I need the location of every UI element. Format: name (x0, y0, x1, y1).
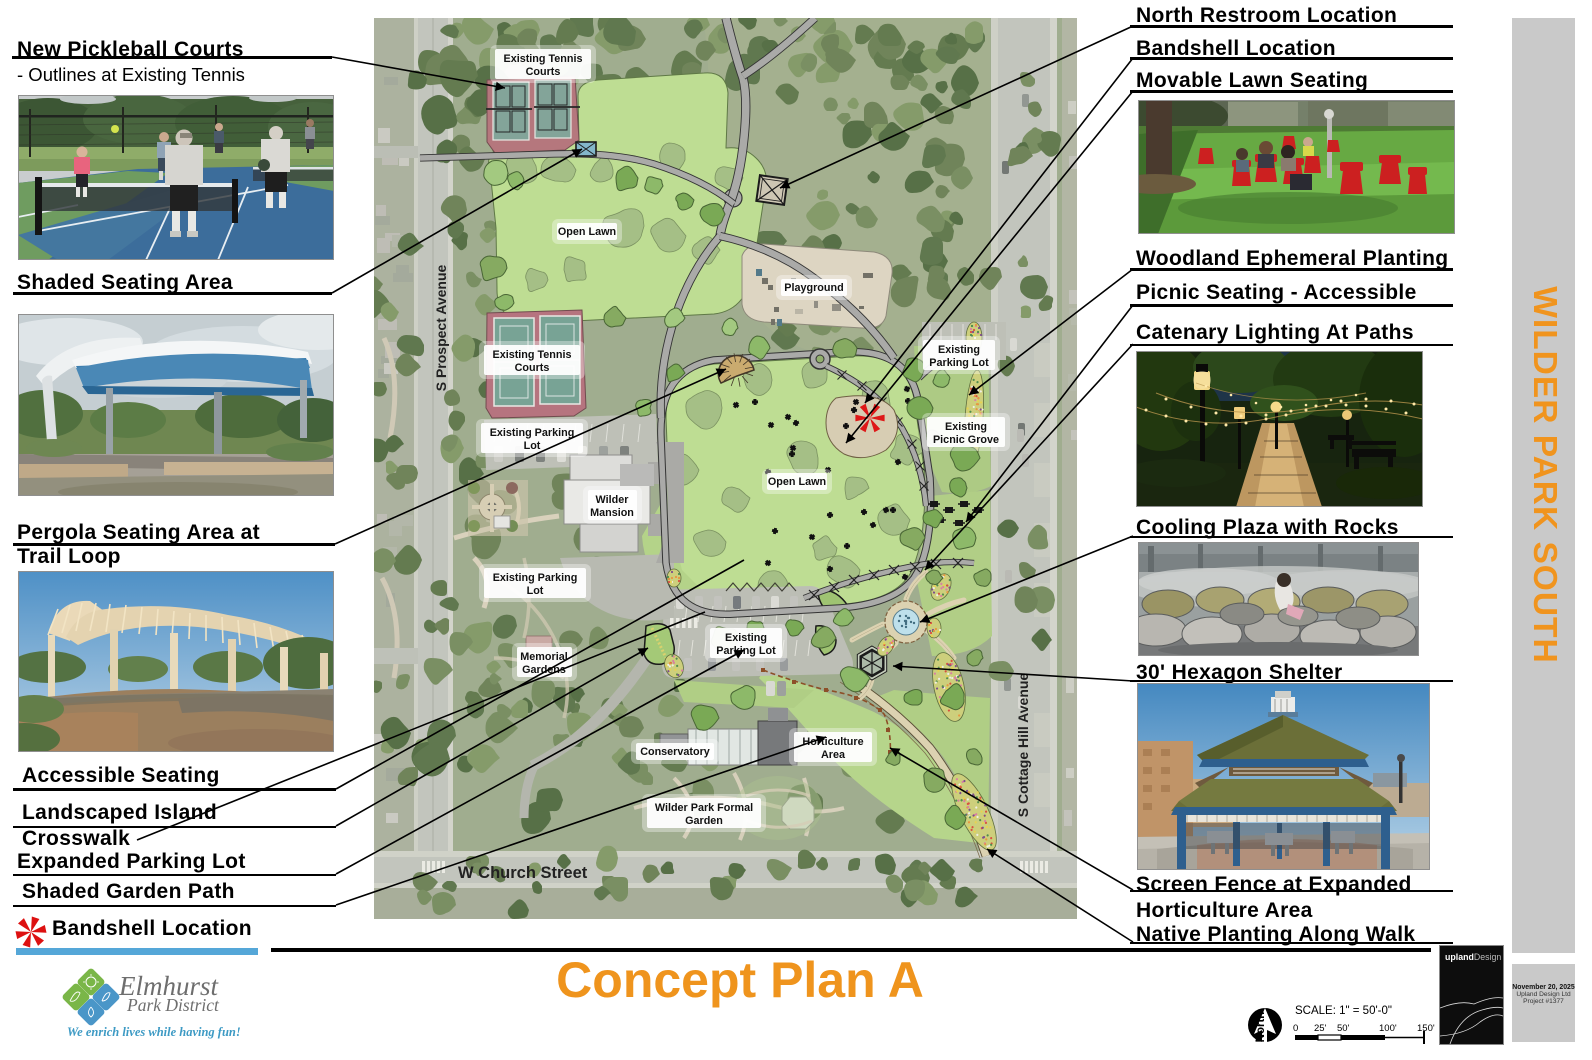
svg-text:150': 150' (1417, 1023, 1435, 1034)
svg-text:uplandDesign: uplandDesign (1445, 952, 1501, 962)
svg-text:0: 0 (1293, 1023, 1298, 1034)
svg-text:100': 100' (1379, 1023, 1397, 1034)
svg-text:50': 50' (1337, 1023, 1350, 1034)
svg-text:We enrich lives while having f: We enrich lives while having fun! (67, 1025, 241, 1039)
svg-text:Park District: Park District (126, 995, 220, 1015)
svg-text:25': 25' (1314, 1023, 1327, 1034)
svg-text:North: North (1255, 1012, 1267, 1043)
